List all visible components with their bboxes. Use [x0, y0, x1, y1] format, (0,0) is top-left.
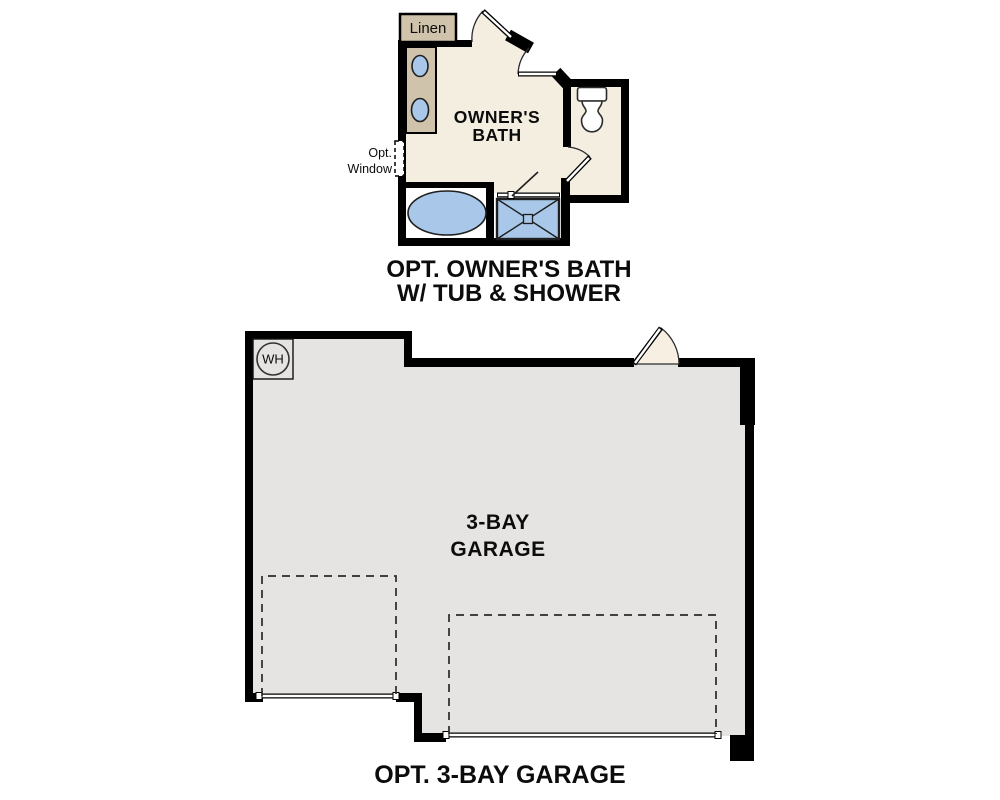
- window-note-line1: Opt.: [368, 146, 392, 160]
- garage-door-opening-small: [256, 693, 399, 700]
- owners-bath-plan: Linen: [348, 11, 632, 307]
- vanity-cabinet: [406, 47, 436, 133]
- window-note-line2: Window: [348, 162, 393, 176]
- garage-caption: OPT. 3-BAY GARAGE: [374, 761, 625, 789]
- floor-plan-page: Linen: [0, 0, 1000, 800]
- water-heater-label: WH: [262, 352, 284, 367]
- floor-plan-drawing: Linen: [0, 0, 1000, 800]
- bathtub: [408, 191, 486, 235]
- shower-drain: [524, 215, 533, 224]
- optional-window: [395, 141, 404, 176]
- bath-room-label-line1: OWNER'S: [454, 107, 540, 127]
- linen-label: Linen: [410, 20, 447, 37]
- garage-floor: [251, 337, 746, 736]
- garage-service-door: [634, 328, 679, 364]
- garage-room-label-line2: GARAGE: [450, 538, 545, 561]
- bath-caption-line2: W/ TUB & SHOWER: [397, 280, 621, 307]
- garage-door-opening-large: [443, 732, 721, 739]
- bath-room-label-line2: BATH: [472, 125, 521, 145]
- sink-icon: [412, 56, 428, 77]
- linen-closet: Linen: [400, 14, 456, 42]
- sink-icon: [412, 99, 429, 122]
- garage-room-label-line1: 3-BAY: [466, 511, 530, 534]
- bath-caption-line1: OPT. OWNER'S BATH: [386, 256, 631, 283]
- garage-plan: WH 3-BAY GARAGE OPT. 3-BAY GARAGE: [245, 328, 755, 789]
